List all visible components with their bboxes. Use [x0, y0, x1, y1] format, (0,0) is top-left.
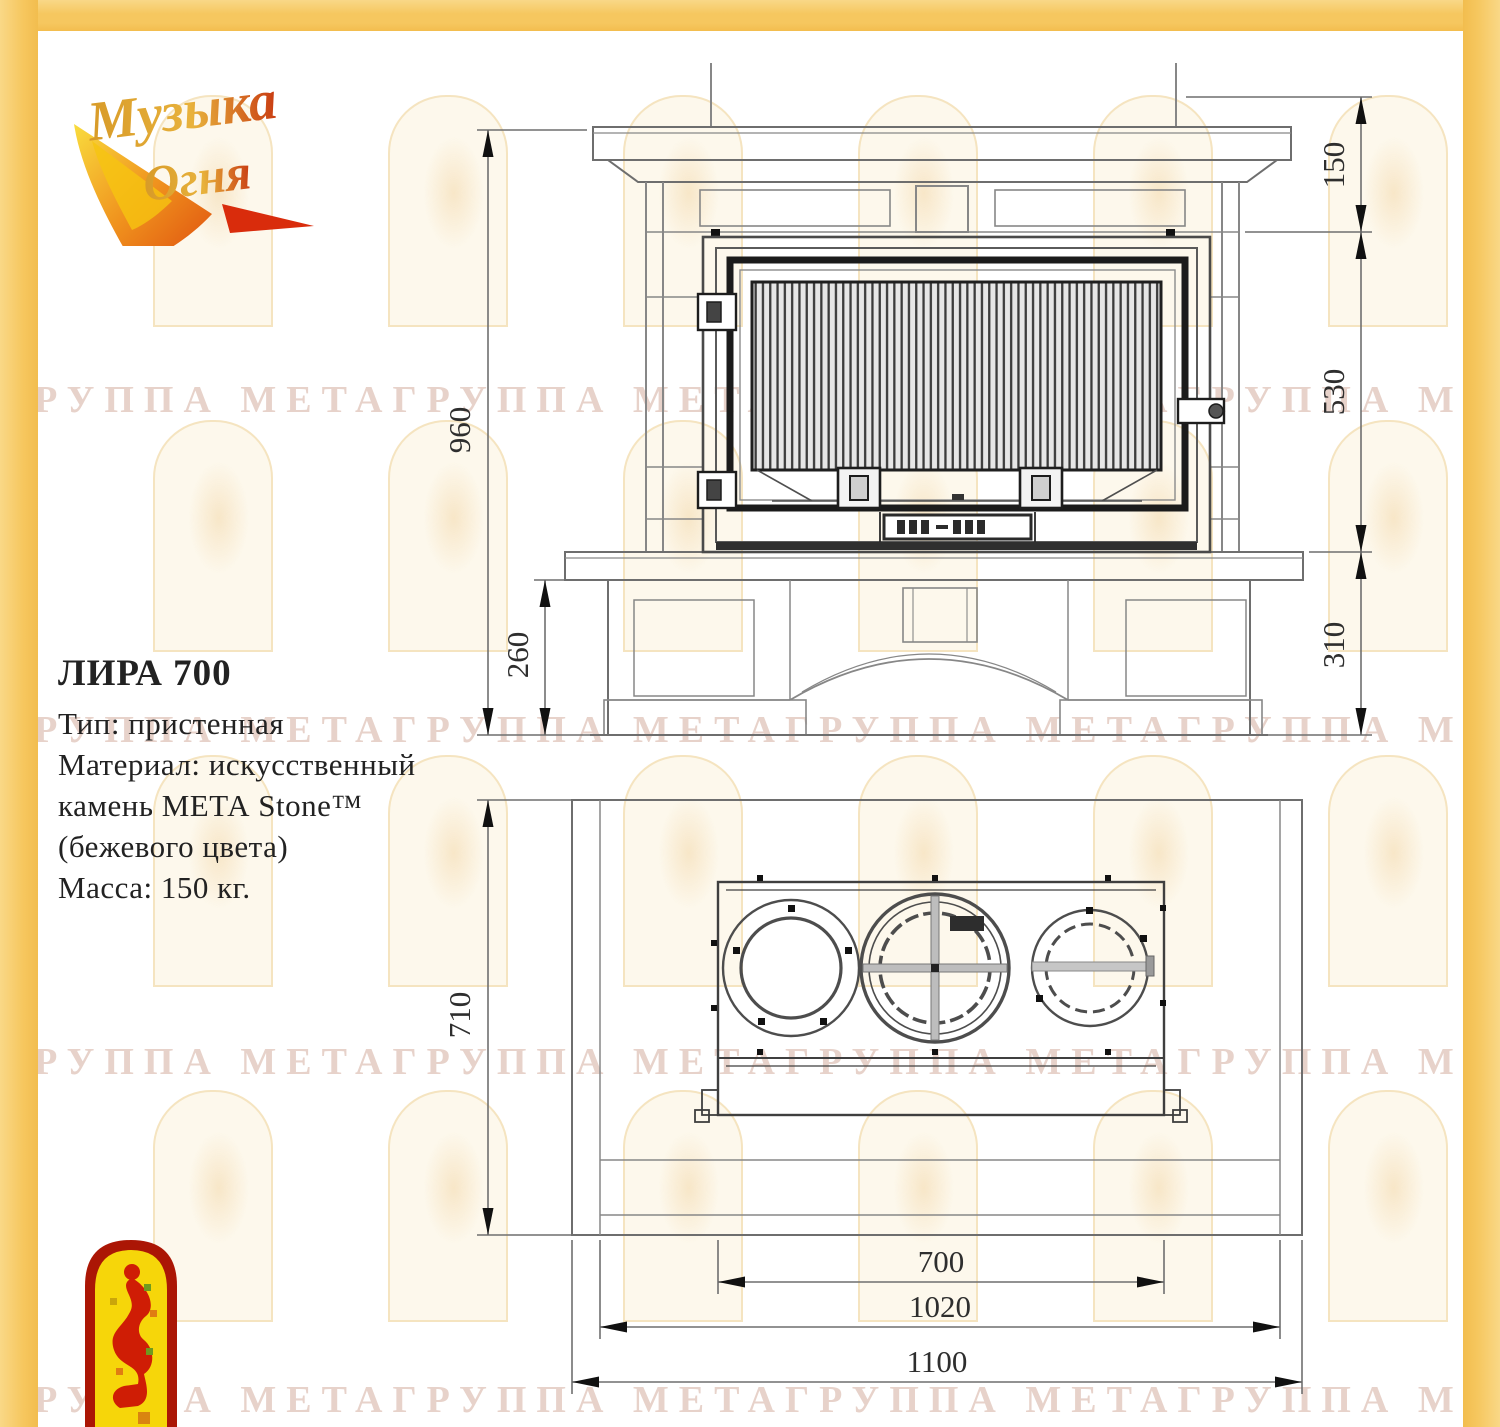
damper-right	[1032, 907, 1154, 1026]
dim-hearth-floor: 260	[500, 632, 535, 679]
logo-word-2: Огня	[140, 143, 254, 212]
product-material-1: Материал: искусственный	[58, 744, 488, 785]
vent-strip	[880, 512, 1035, 542]
logo-word-1: Музыка	[83, 69, 280, 154]
flue-center	[861, 894, 1009, 1042]
dim-depth: 710	[442, 992, 477, 1039]
dim-top-band: 150	[1316, 142, 1351, 189]
plan-view	[572, 800, 1302, 1235]
door-louvers	[752, 282, 1161, 470]
brand-logo: Музыка Огня	[52, 36, 332, 246]
dim-firebox-width: 700	[918, 1244, 965, 1279]
dim-total-width: 1100	[907, 1344, 968, 1379]
firebox-insert	[698, 229, 1224, 552]
dim-base-height: 310	[1316, 622, 1351, 669]
duct-left	[723, 900, 859, 1036]
product-mass: Масса: 150 кг.	[58, 867, 488, 908]
page-border-right	[1463, 0, 1500, 1427]
product-info: ЛИРА 700 Тип: пристенная Материал: искус…	[58, 652, 488, 908]
door-handle	[1178, 399, 1224, 423]
page-border-left	[0, 0, 38, 1427]
page: ГРУППА МЕТАГРУППА МЕТАГРУППА МЕТАГРУППА …	[0, 0, 1500, 1427]
product-material-2: камень МЕТА Stone™	[58, 785, 488, 826]
red-streak	[222, 204, 314, 233]
company-emblem	[80, 1236, 190, 1427]
dim-inner-width: 1020	[909, 1289, 971, 1324]
door-feet	[838, 468, 1062, 508]
product-material-3: (бежевого цвета)	[58, 826, 488, 867]
dim-height-total: 960	[442, 407, 477, 454]
dim-firebox-height: 530	[1316, 369, 1351, 416]
product-title: ЛИРА 700	[58, 652, 488, 695]
product-type: Тип: пристенная	[58, 703, 488, 744]
page-border-top	[0, 0, 1500, 31]
